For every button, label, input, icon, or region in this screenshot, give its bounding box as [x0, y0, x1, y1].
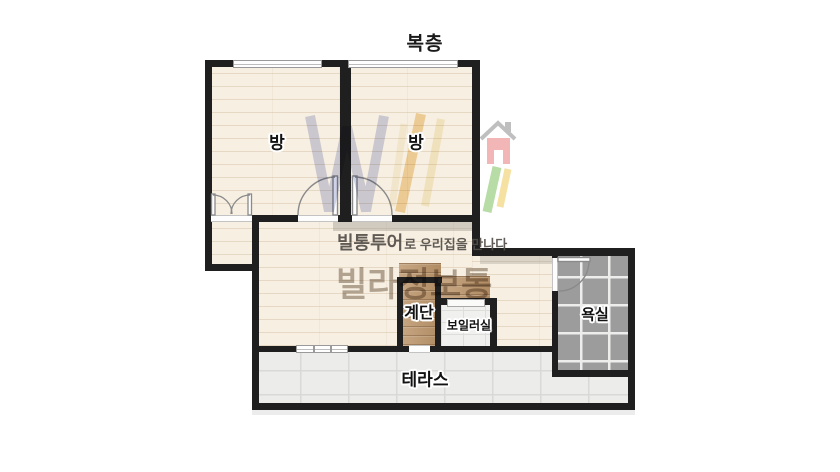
wall: [252, 215, 259, 410]
window-symbol: [296, 345, 348, 353]
page-title: 복층: [407, 29, 444, 56]
wall: [552, 370, 635, 377]
door-opening: [552, 258, 558, 291]
watermark-slogan: 빌통투어 로 우리집을 만나다: [337, 229, 507, 255]
watermark-slogan-rest: 로 우리집을 만나다: [404, 234, 507, 253]
door-opening: [211, 215, 252, 222]
wall: [205, 60, 212, 271]
wall: [205, 264, 259, 271]
house-icon: [481, 122, 515, 212]
wall: [628, 248, 635, 410]
window-mullion: [313, 346, 315, 352]
wall: [472, 60, 480, 256]
floorplan-canvas: 빌통투어 로 우리집을 만나다 빌라정보통 복층 방 방 계단 보일러실 욕실 …: [0, 0, 840, 472]
alcove-floor: [205, 215, 259, 271]
room-label-bedroom-left: 방: [269, 129, 285, 154]
door-opening: [298, 215, 338, 222]
watermark-slogan-bold: 빌통투어: [337, 229, 403, 255]
wall: [340, 67, 351, 215]
wall-shadow: [252, 410, 635, 415]
wall: [252, 403, 635, 410]
room-label-terrace: 테라스: [402, 366, 449, 391]
room-label-stairs: 계단: [404, 299, 433, 323]
room-label-bedroom-right: 방: [408, 129, 424, 154]
room-label-bathroom: 욕실: [581, 304, 609, 325]
door-opening: [409, 345, 430, 353]
window-symbol: [233, 60, 322, 68]
window-mullion: [330, 346, 332, 352]
door-opening: [352, 215, 392, 222]
window-symbol: [348, 60, 458, 68]
room-label-boiler: 보일러실: [447, 317, 491, 334]
